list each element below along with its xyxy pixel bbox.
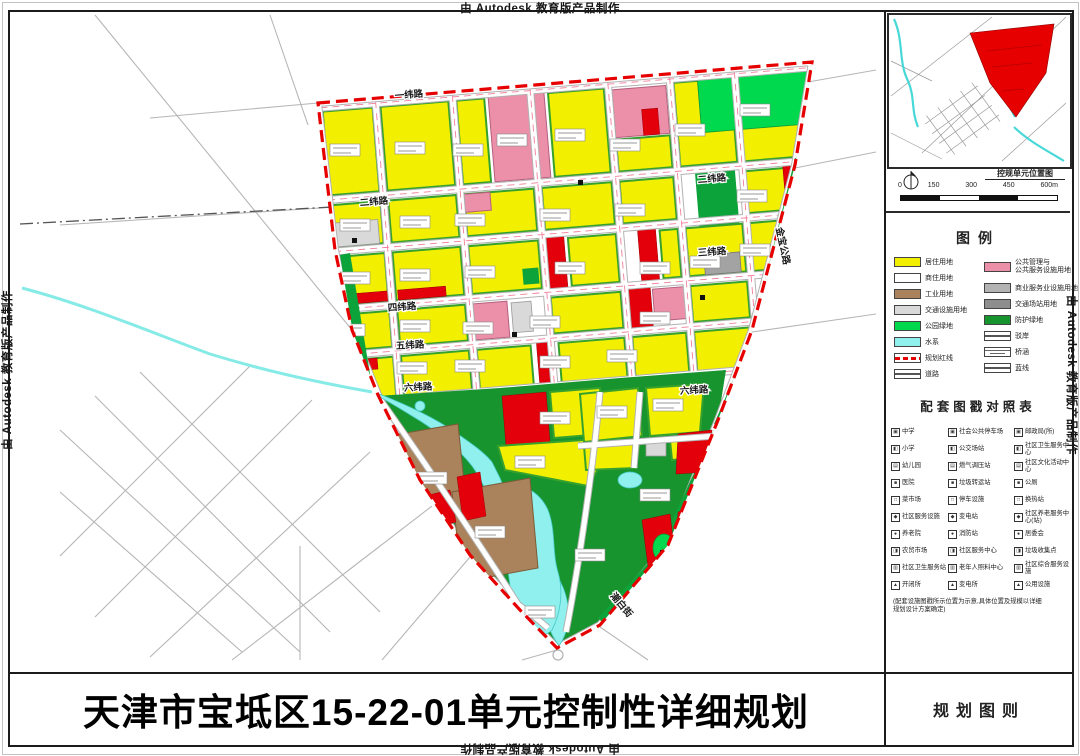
legend-item-commercial-residential-land: 商住用地: [894, 270, 982, 286]
protective-green-land-swatch: [984, 315, 1011, 325]
facility-stamp-icon: ◨: [1014, 547, 1023, 556]
facility-label: 居委会: [1025, 531, 1044, 537]
inset-caption: 控规单元位置图: [985, 168, 1065, 180]
facility-label: 社会公共停车场: [959, 429, 1003, 435]
facility-label: 垃圾转运站: [959, 480, 990, 486]
facility-label: 公交场站: [959, 446, 984, 452]
legend-label: 商业服务业设施用地: [1015, 283, 1078, 293]
facility-label: 变电所: [959, 582, 978, 588]
facility-stamp-icon: ●: [891, 530, 900, 539]
facility-stamp-icon: ▣: [948, 428, 957, 437]
watermark-right: 由 Autodesk 教育版产品制作: [1064, 295, 1080, 455]
legend-item-public-admin-service-land: 公共管理与公共服务设施用地: [984, 254, 1072, 280]
park-green-land-swatch: [894, 321, 921, 331]
legend-label: 蓝线: [1015, 363, 1029, 373]
legend-item-water-system: 水系: [894, 334, 982, 350]
legend-label: 驳岸: [1015, 331, 1029, 341]
facility-entry: ▥老年人照料中心: [948, 560, 1014, 577]
facility-entry: ■公厕: [1014, 475, 1073, 492]
facility-stamp-icon: ▤: [948, 462, 957, 471]
transport-station-land-swatch: [984, 299, 1011, 309]
planning-area: [318, 62, 835, 648]
legend-item-planning-red-line: 规划红线: [894, 350, 982, 366]
scale-tick: 450: [1003, 182, 1015, 189]
facility-entry: □换热站: [1014, 492, 1073, 509]
facility-stamp-icon: ◆: [891, 513, 900, 522]
facility-stamp-icon: ▲: [891, 581, 900, 590]
facility-stamp-icon: ▥: [1014, 564, 1023, 573]
scale-ticks: 0150300450600m: [898, 182, 1058, 189]
facility-entry: ▲开闭所: [891, 577, 948, 594]
legend-label: 水系: [925, 337, 939, 347]
facility-entry: ▤幼儿园: [891, 458, 948, 475]
legend-label: 居住用地: [925, 257, 953, 267]
facility-label: 变电站: [959, 514, 978, 520]
facility-entry: ●居委会: [1014, 526, 1073, 543]
facility-table: ▣中学◧小学▤幼儿园■医院□菜市场◆社区服务设施●养老院◨农贸市场▥社区卫生服务…: [891, 424, 1073, 594]
facility-entry: □停车设施: [948, 492, 1014, 509]
stream: [22, 288, 372, 392]
scale-bar: [900, 195, 1058, 201]
facility-stamp-icon: ▲: [948, 581, 957, 590]
residential-land-swatch: [894, 257, 921, 267]
legend-item-commercial-service-land: 商业服务业设施用地: [984, 280, 1072, 296]
road-label: 一纬路: [394, 88, 424, 102]
facility-stamp-icon: □: [891, 496, 900, 505]
watermark-left: 由 Autodesk 教育版产品制作: [0, 290, 15, 450]
legend-label: 防护绿地: [1015, 315, 1043, 325]
facility-entry: ■医院: [891, 475, 948, 492]
facility-label: 社区文化活动中心: [1025, 460, 1073, 473]
locator-map: [889, 15, 1066, 163]
facility-label: 养老院: [902, 531, 921, 537]
legend-label: 桥涵: [1015, 347, 1029, 357]
legend-label: 商住用地: [925, 273, 953, 283]
road-label: 二纬路: [697, 172, 727, 186]
facility-stamp-icon: ■: [1014, 479, 1023, 488]
facility-entry: ▤社区文化活动中心: [1014, 458, 1073, 475]
facility-label: 公厕: [1025, 480, 1038, 486]
facility-stamp-icon: ◧: [948, 445, 957, 454]
facility-stamp-icon: ▥: [948, 564, 957, 573]
facility-label: 社区卫生服务站: [902, 565, 946, 571]
scale-tick: 600m: [1040, 182, 1058, 189]
blue-line-swatch: [984, 363, 1011, 373]
water-system-swatch: [894, 337, 921, 347]
legend-item-residential-land: 居住用地: [894, 254, 982, 270]
plan-sheet: 一纬路二纬路二纬路三纬路四纬路五纬路六纬路六纬路金宝公路潮白街 控规单元: [0, 0, 1080, 756]
commercial-service-land-swatch: [984, 283, 1011, 293]
facility-entry: ▥社区综合服务设施: [1014, 560, 1073, 577]
facility-label: 幼儿园: [902, 463, 921, 469]
facility-entry: ◨垃圾收集点: [1014, 543, 1073, 560]
legend-label: 工业用地: [925, 289, 953, 299]
facility-label: 农贸市场: [902, 548, 927, 554]
facility-label: 公用设施: [1025, 582, 1050, 588]
legend-item-protective-green-land: 防护绿地: [984, 312, 1072, 328]
facility-label: 燃气调压站: [959, 463, 990, 469]
legend-item-industrial-land: 工业用地: [894, 286, 982, 302]
facility-entry: ◨社区服务中心: [948, 543, 1014, 560]
road-label: 六纬路: [404, 380, 434, 394]
legend-column-left: 居住用地商住用地工业用地交通设施用地公园绿地水系规划红线道路: [894, 254, 982, 382]
north-arrow-icon: [898, 168, 924, 194]
legend-label: 规划红线: [925, 353, 953, 363]
facility-entry: ●消防站: [948, 526, 1014, 543]
watermark-top: 由 Autodesk 教育版产品制作: [460, 0, 620, 16]
road-label: 二纬路: [359, 195, 389, 209]
facility-stamp-icon: ◧: [891, 445, 900, 454]
legend-item-park-green-land: 公园绿地: [894, 318, 982, 334]
page-title: 天津市宝坻区15-22-01单元控制性详细规划: [8, 674, 884, 743]
facility-label: 社区综合服务设施: [1025, 562, 1073, 575]
facility-label: 小学: [902, 446, 915, 452]
road-label: 六纬路: [680, 383, 710, 397]
bridge-culvert-swatch: [984, 347, 1011, 357]
facility-stamp-icon: ■: [948, 479, 957, 488]
facility-stamp-icon: ◨: [948, 547, 957, 556]
facility-stamp-icon: ◆: [1014, 513, 1023, 522]
facility-stamp-icon: □: [1014, 496, 1023, 505]
public-admin-service-land-swatch: [984, 262, 1011, 272]
legend-item-blue-line: 蓝线: [984, 360, 1072, 376]
facility-label: 消防站: [959, 531, 978, 537]
legend-label: 公共管理与公共服务设施用地: [1015, 259, 1071, 275]
legend-column-right: 公共管理与公共服务设施用地商业服务业设施用地交通场站用地防护绿地驳岸桥涵蓝线: [984, 254, 1072, 376]
road-swatch: [894, 369, 921, 379]
facility-entry: ◧小学: [891, 441, 948, 458]
industrial-land-swatch: [894, 289, 921, 299]
legend-title: 图例: [884, 228, 1072, 248]
facility-label: 老年人照料中心: [959, 565, 1003, 571]
facility-entry: ▲变电所: [948, 577, 1014, 594]
facility-stamp-icon: ●: [948, 530, 957, 539]
road-label: 金宝公路: [773, 225, 793, 266]
facility-entry: ▥社区卫生服务站: [891, 560, 948, 577]
facility-stamp-icon: ▤: [1014, 462, 1023, 471]
facility-label: 换热站: [1025, 497, 1044, 503]
transport-facility-land-swatch: [894, 305, 921, 315]
commercial-residential-land-swatch: [894, 273, 921, 283]
legend-item-transport-facility-land: 交通设施用地: [894, 302, 982, 318]
locator-inset-box: [887, 13, 1072, 169]
facility-label: 菜市场: [902, 497, 921, 503]
legend-item-road: 道路: [894, 366, 982, 382]
facility-entry: □菜市场: [891, 492, 948, 509]
facility-entry: ◨农贸市场: [891, 543, 948, 560]
planning-map: 一纬路二纬路二纬路三纬路四纬路五纬路六纬路六纬路金宝公路潮白街: [10, 12, 882, 670]
road-label: 三纬路: [697, 245, 727, 259]
facility-label: 社区服务设施: [902, 514, 940, 520]
facility-entry: ◆变电站: [948, 509, 1014, 526]
facility-entry: ■垃圾转运站: [948, 475, 1014, 492]
facility-stamp-icon: ▣: [891, 428, 900, 437]
facility-label: 社区服务中心: [959, 548, 997, 554]
road-label: 五纬路: [396, 338, 426, 352]
facility-stamp-icon: ◨: [891, 547, 900, 556]
legend-divider: [886, 211, 1070, 213]
facility-stamp-icon: ▥: [891, 564, 900, 573]
panel-divider: [884, 10, 886, 745]
facility-entry: ▣中学: [891, 424, 948, 441]
facility-label: 中学: [902, 429, 915, 435]
legend-item-revetment: 驳岸: [984, 328, 1072, 344]
scale-tick: 300: [965, 182, 977, 189]
scale-tick: 150: [928, 182, 940, 189]
facility-entry: ▲公用设施: [1014, 577, 1073, 594]
legend-label: 公园绿地: [925, 321, 953, 331]
facility-entry: ◆社区养老服务中心(站): [1014, 509, 1073, 526]
facility-stamp-icon: ▲: [1014, 581, 1023, 590]
facility-stamp-icon: ◧: [1014, 445, 1023, 454]
facility-stamp-icon: ●: [1014, 530, 1023, 539]
facility-label: 医院: [902, 480, 915, 486]
facility-stamp-icon: ▤: [891, 462, 900, 471]
facility-label: 开闭所: [902, 582, 921, 588]
legend-label: 交通场站用地: [1015, 299, 1057, 309]
legend-item-transport-station-land: 交通场站用地: [984, 296, 1072, 312]
road-label: 四纬路: [387, 300, 417, 314]
facility-stamp-icon: ■: [891, 479, 900, 488]
sheet-type-label: 规划图则: [886, 674, 1072, 743]
facility-stamp-icon: ▣: [1014, 428, 1023, 437]
planning-red-line-swatch: [894, 353, 921, 363]
planning-unit-area: [970, 24, 1054, 117]
legend-label: 交通设施用地: [925, 305, 967, 315]
facility-label: 垃圾收集点: [1025, 548, 1056, 554]
facility-label: 社区养老服务中心(站): [1025, 511, 1073, 524]
facility-entry: ◧公交场站: [948, 441, 1014, 458]
facility-label: 邮政局(所): [1025, 429, 1054, 435]
facility-label: 停车设施: [959, 497, 984, 503]
facility-entry: ●养老院: [891, 526, 948, 543]
revetment-swatch: [984, 331, 1011, 341]
facility-entry: ▤燃气调压站: [948, 458, 1014, 475]
legend-item-bridge-culvert: 桥涵: [984, 344, 1072, 360]
legend-label: 道路: [925, 369, 939, 379]
scale-tick: 0: [898, 182, 902, 189]
facility-stamp-icon: □: [948, 496, 957, 505]
facility-entry: ▣社会公共停车场: [948, 424, 1014, 441]
facility-table-note: (配套设施图戳所示位置为示意,具体位置及规模以详细规划设计方案确定): [893, 598, 1043, 614]
facility-table-title: 配套图戳对照表: [884, 396, 1072, 415]
facility-stamp-icon: ◆: [948, 513, 957, 522]
facility-entry: ◆社区服务设施: [891, 509, 948, 526]
watermark-bottom: 由 Autodesk 教育版产品制作: [460, 741, 620, 756]
